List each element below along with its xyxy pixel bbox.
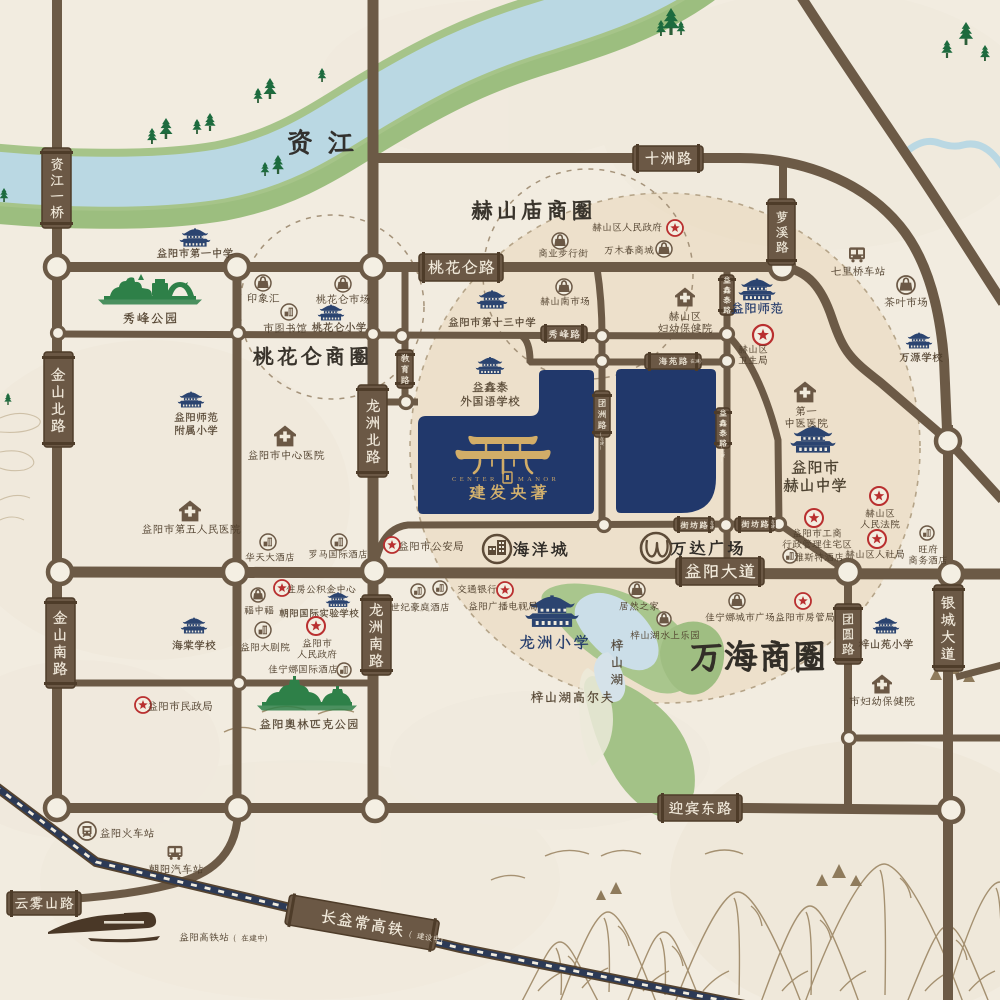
svg-text:MANOR: MANOR — [518, 476, 559, 483]
svg-text:CENTER: CENTER — [452, 476, 498, 483]
